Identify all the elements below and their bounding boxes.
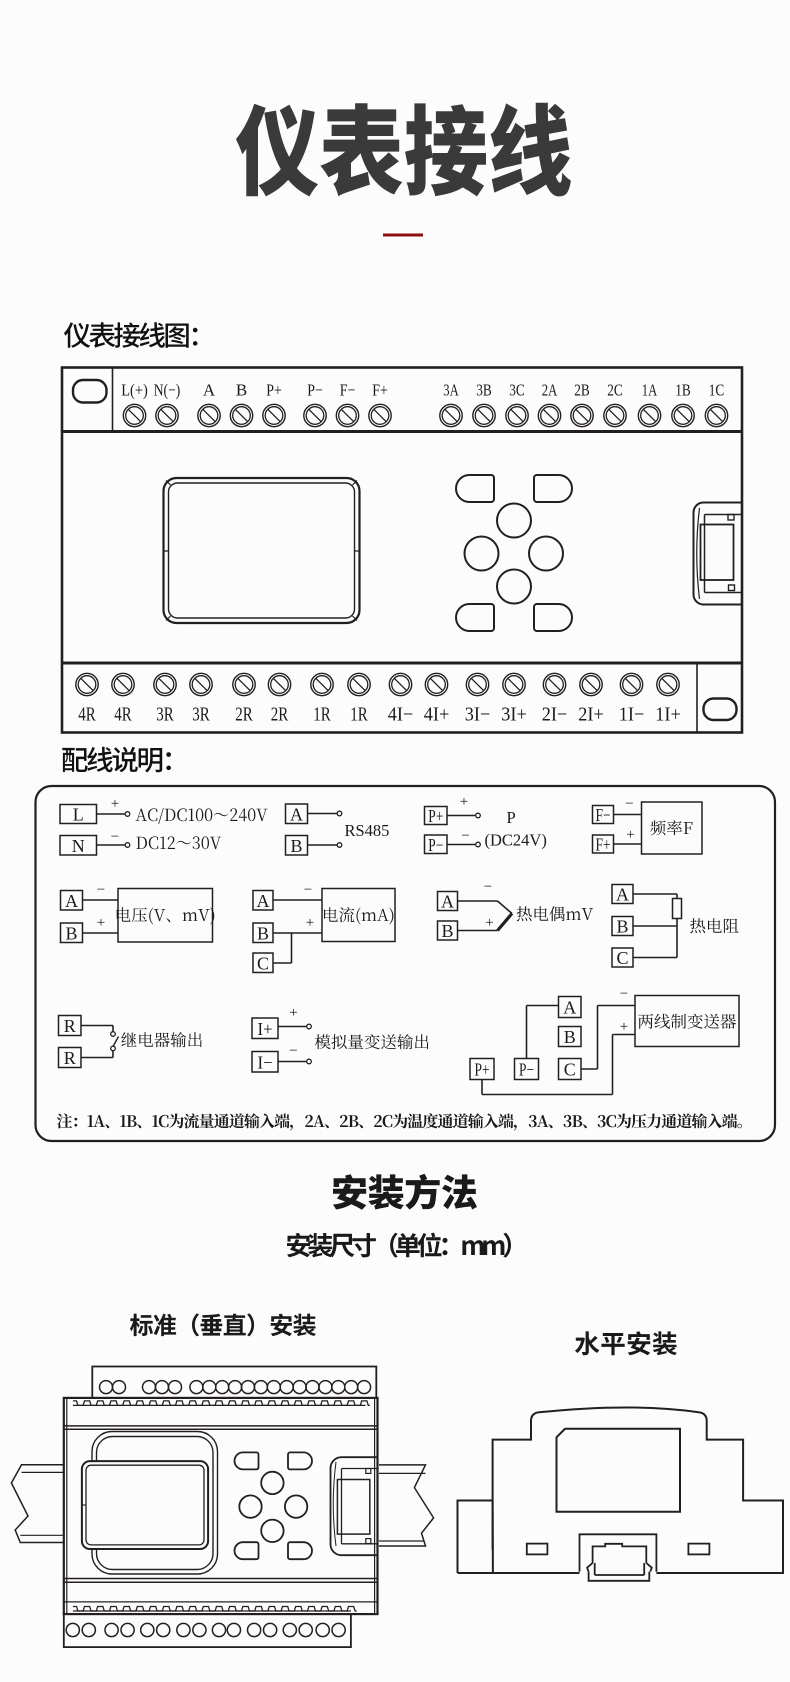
svg-text:B: B [65,923,77,943]
svg-text:3I−: 3I− [465,704,491,726]
svg-text:B: B [290,836,302,856]
svg-text:3R: 3R [156,704,174,726]
svg-text:B: B [441,921,453,941]
svg-text:3C: 3C [509,380,525,399]
svg-text:4I−: 4I− [388,704,414,726]
svg-text:P+: P+ [266,380,282,399]
svg-text:RS485: RS485 [345,821,390,840]
svg-text:F+: F+ [372,380,388,399]
svg-text:−: − [625,796,633,812]
svg-text:2R: 2R [271,704,289,726]
svg-text:R: R [64,1048,76,1068]
svg-text:F−: F− [596,805,611,825]
svg-text:P+: P+ [475,1060,490,1080]
svg-text:A: A [203,380,216,399]
svg-text:A: A [290,804,303,824]
svg-text:+: + [306,915,314,931]
svg-text:1C: 1C [709,380,725,399]
svg-text:−: − [111,829,119,845]
svg-text:L(+): L(+) [121,380,148,399]
svg-text:4I+: 4I+ [424,704,450,726]
svg-text:B: B [564,1027,576,1047]
svg-text:+: + [485,915,493,931]
svg-text:2A: 2A [542,380,558,399]
svg-text:−: − [304,882,312,898]
svg-text:−: − [97,882,105,898]
svg-text:1I−: 1I− [619,704,645,726]
svg-text:P−: P− [428,835,443,855]
svg-text:I−: I− [258,1052,273,1072]
svg-text:4R: 4R [78,704,96,726]
svg-text:3A: 3A [443,380,459,399]
svg-text:C: C [257,953,269,973]
svg-text:R: R [64,1016,76,1036]
svg-text:(DC24V): (DC24V) [485,831,547,850]
svg-text:−: − [461,828,469,844]
svg-text:C: C [616,948,628,968]
svg-text:+: + [97,915,105,931]
svg-text:−: − [484,879,492,895]
svg-text:P: P [507,808,516,827]
svg-text:N: N [72,836,85,856]
svg-text:1A: 1A [642,380,658,399]
svg-text:A: A [441,892,454,912]
svg-text:B: B [257,923,269,943]
svg-text:3B: 3B [476,380,492,399]
svg-text:+: + [111,796,119,812]
svg-text:B: B [616,917,628,937]
svg-text:P−: P− [519,1060,534,1080]
svg-text:3I+: 3I+ [501,704,527,726]
svg-text:+: + [289,1005,297,1021]
svg-text:4R: 4R [114,704,132,726]
svg-text:L: L [73,805,84,825]
svg-text:P−: P− [307,380,323,399]
svg-text:B: B [236,380,247,399]
svg-text:F−: F− [340,380,356,399]
svg-text:A: A [65,891,78,911]
svg-text:2I+: 2I+ [578,704,604,726]
svg-text:I+: I+ [258,1019,273,1039]
svg-text:2B: 2B [574,380,590,399]
svg-text:+: + [460,794,468,810]
svg-text:P+: P+ [428,806,443,826]
svg-text:−: − [289,1043,297,1059]
svg-text:A: A [563,998,576,1018]
svg-text:A: A [616,885,629,905]
svg-text:1R: 1R [350,704,368,726]
svg-text:2I−: 2I− [542,704,568,726]
svg-text:2C: 2C [607,380,623,399]
svg-text:1B: 1B [675,380,691,399]
svg-text:C: C [564,1060,576,1080]
svg-text:F+: F+ [596,835,611,855]
svg-text:3R: 3R [192,704,210,726]
svg-text:+: + [620,1019,628,1035]
svg-text:A: A [257,891,270,911]
svg-text:N(−): N(−) [154,380,181,399]
svg-text:1I+: 1I+ [655,704,681,726]
svg-text:1R: 1R [313,704,331,726]
svg-text:−: − [620,986,628,1002]
svg-text:2R: 2R [235,704,253,726]
svg-text:+: + [626,827,634,843]
